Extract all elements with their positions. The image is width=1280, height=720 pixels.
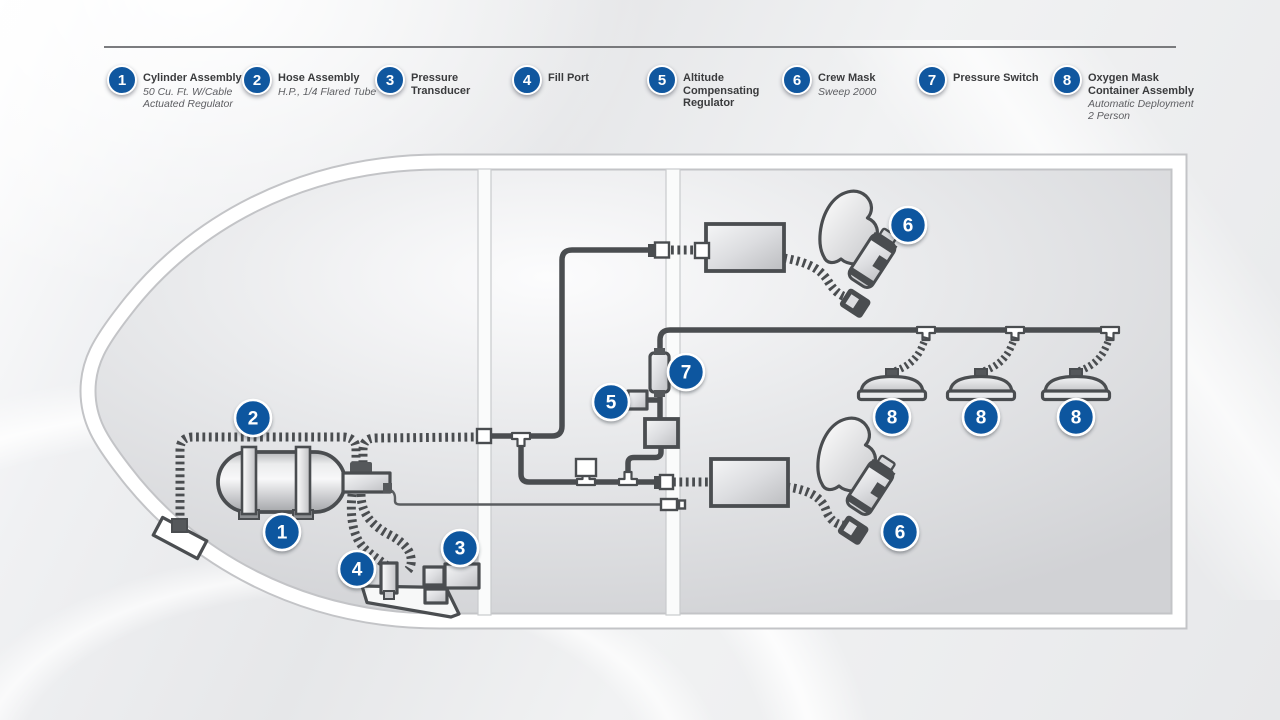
transducer-fitting [424, 567, 444, 585]
callout-badge-acr: 5 [593, 384, 629, 420]
oxygen-system-diagram: 1 2 3 4 5 6 6 7 8 8 8 [0, 0, 1280, 720]
regulator-manifold [645, 419, 678, 447]
crew-mask-stowage-box-top [706, 224, 784, 271]
altitude-compensating-regulator [628, 391, 647, 409]
regulator-elbow [383, 483, 392, 493]
fuselage-frame-stripe-1 [478, 169, 491, 615]
callout-badge-transducer: 3 [442, 530, 478, 566]
callout-badge-fill-port: 4 [339, 551, 375, 587]
sense-line-cap [679, 501, 685, 509]
callout-number: 7 [681, 363, 692, 384]
callout-number: 8 [976, 408, 987, 429]
callout-number: 1 [277, 523, 288, 544]
callout-badge-crew-mask-bottom: 6 [882, 514, 918, 550]
pressure-switch-cap [654, 348, 665, 355]
callout-badge-cylinder: 1 [264, 514, 300, 550]
callout-number: 8 [887, 408, 898, 429]
hose-union-fitting [655, 243, 669, 258]
fill-port [381, 563, 397, 593]
fill-port-assembly [381, 563, 397, 599]
pressure-switch [650, 353, 669, 392]
cylinder-strap [296, 447, 310, 514]
callout-number: 6 [895, 523, 906, 544]
fill-port-base [384, 591, 394, 599]
cylinder-strap [242, 447, 256, 514]
callout-badge-crew-mask-top: 6 [890, 207, 926, 243]
callout-number: 2 [248, 409, 259, 430]
transducer-mount [425, 589, 447, 603]
check-valve [576, 459, 596, 476]
hose-union-fitting [695, 243, 709, 258]
callout-number: 6 [903, 216, 914, 237]
callout-badge-container-3: 8 [1058, 399, 1094, 435]
callout-badge-pressure-switch: 7 [668, 354, 704, 390]
pressure-switch-cap [654, 390, 665, 397]
cable-actuated-regulator [343, 473, 390, 492]
hose-union-fitting [477, 429, 491, 443]
pressure-transducer [445, 564, 479, 588]
crew-mask-stowage-box-bottom [711, 459, 788, 506]
callout-number: 4 [352, 560, 363, 581]
callout-number: 8 [1071, 408, 1082, 429]
hose-union-fitting [660, 475, 673, 489]
callout-number: 3 [455, 539, 466, 560]
oxygen-cylinder [218, 452, 345, 512]
callout-badge-container-2: 8 [963, 399, 999, 435]
callout-badge-hose: 2 [235, 400, 271, 436]
callout-badge-container-1: 8 [874, 399, 910, 435]
sense-line-fitting [661, 499, 677, 510]
callout-number: 5 [606, 393, 617, 414]
